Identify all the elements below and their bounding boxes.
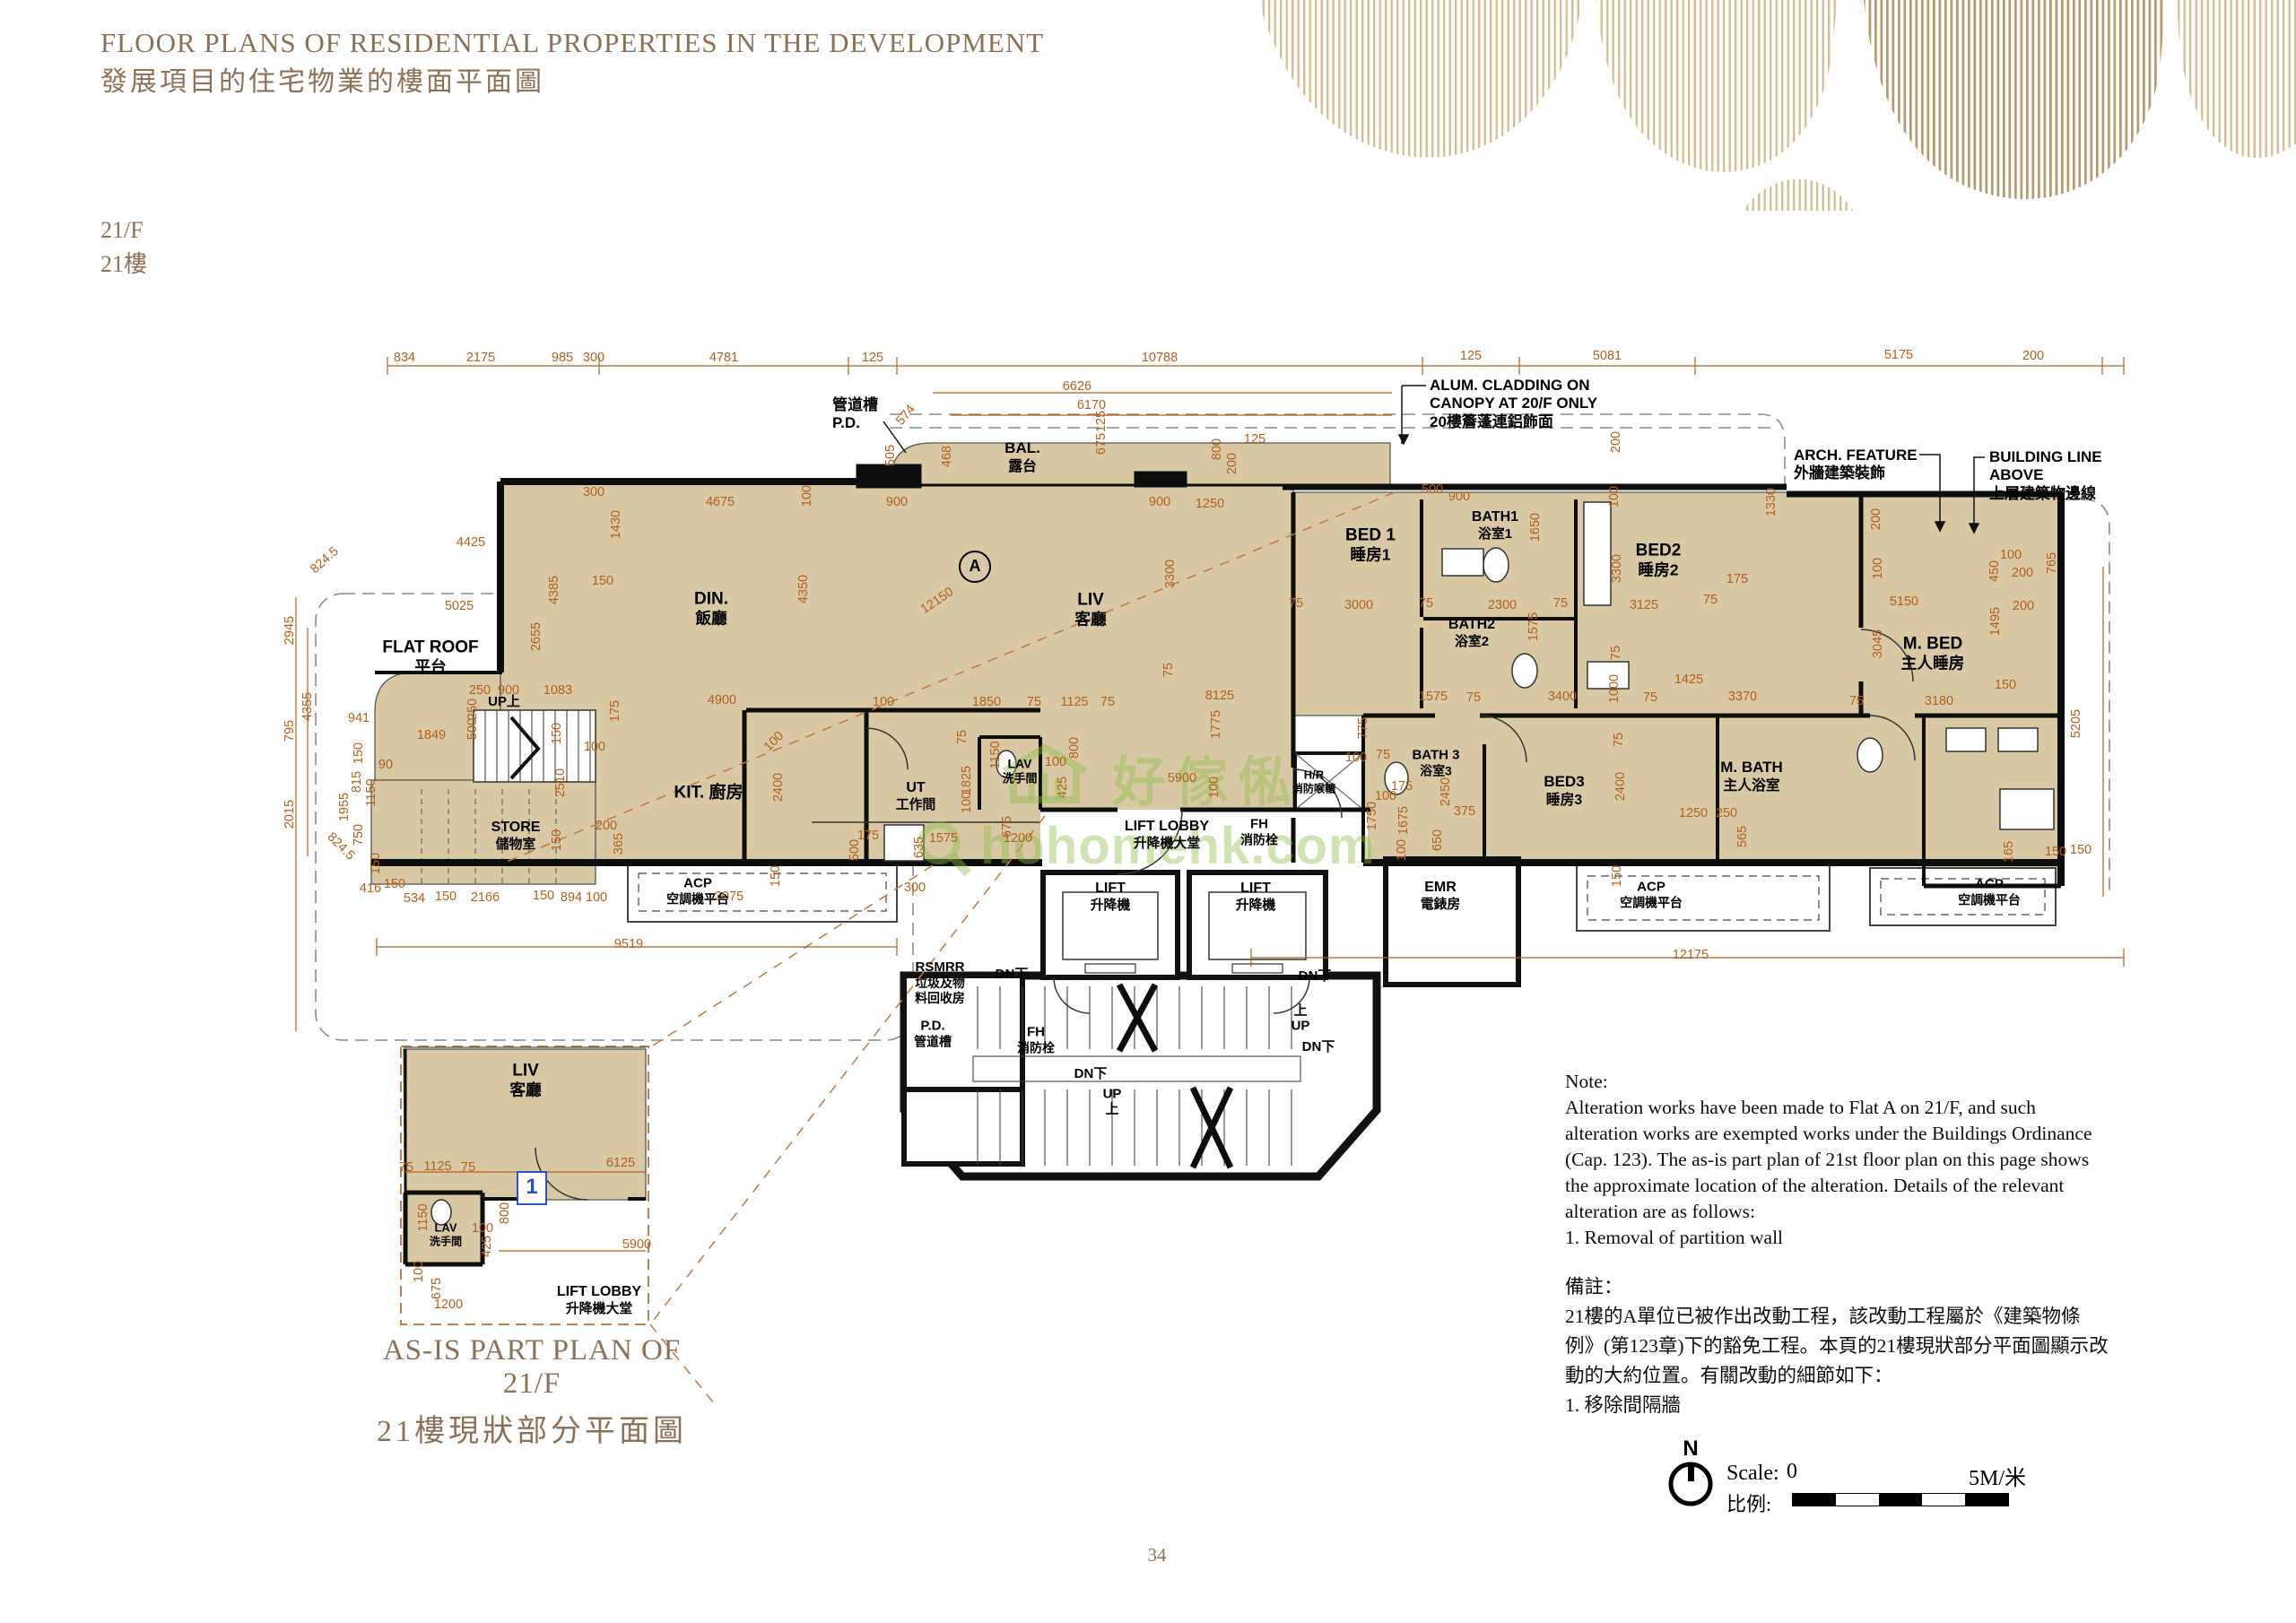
dimension-label: 1250 bbox=[1196, 497, 1224, 511]
dimension-label: 900 bbox=[1149, 495, 1170, 509]
dimension-label: 175 bbox=[1726, 572, 1748, 586]
dimension-label: 500 bbox=[848, 839, 862, 861]
scale-zero: 0 bbox=[1787, 1460, 1797, 1484]
note-en: Note: Alteration works have been made to… bbox=[1565, 1069, 2211, 1251]
dimension-label: 1495 bbox=[1988, 607, 2003, 636]
dimension-label: 100 bbox=[2000, 548, 2022, 562]
dimension-label: 534 bbox=[404, 891, 425, 906]
dimension-label: 150 bbox=[369, 853, 383, 874]
dimension-label: 3400 bbox=[1548, 690, 1577, 704]
dimension-label: 416 bbox=[360, 881, 381, 896]
dimension-label: 1750 bbox=[1365, 802, 1379, 830]
asis-dimension-label: 800 bbox=[498, 1202, 512, 1224]
dimension-label: 1775 bbox=[1209, 710, 1223, 739]
dimension-label: 3300 bbox=[1610, 554, 1624, 583]
alteration-marker-1: 1 bbox=[517, 1171, 547, 1205]
plan-callout: BUILDING LINEABOVE上層建築物邊線 bbox=[1989, 448, 2102, 503]
note-line: Alteration works have been made to Flat … bbox=[1565, 1095, 2211, 1121]
dimension-label: 75 bbox=[1376, 748, 1390, 762]
room-label: EMR電錶房 bbox=[1421, 879, 1461, 913]
dimension-label: 3045 bbox=[1871, 629, 1885, 658]
dimension-label: 650 bbox=[1431, 829, 1445, 851]
dimension-label: 1575 bbox=[1419, 690, 1448, 704]
dimension-label: 125 bbox=[862, 351, 883, 365]
dimension-label: 800 bbox=[1067, 737, 1082, 759]
dimension-label: 3300 bbox=[1163, 560, 1178, 588]
plan-callout: ALUM. CLADDING ONCANOPY AT 20/F ONLY20樓簷… bbox=[1430, 377, 1597, 431]
room-label: M. BED主人睡房 bbox=[1901, 634, 1965, 674]
asis-dimension-label: 1125 bbox=[423, 1159, 451, 1174]
dimension-label: 675 bbox=[1000, 816, 1014, 838]
decorative-line-pattern bbox=[1258, 0, 2296, 211]
stair-direction-label: UP上 bbox=[488, 695, 520, 710]
room-label: M. BATH主人浴室 bbox=[1720, 759, 1783, 794]
room-label: LIFT LOBBY升降機大堂 bbox=[557, 1283, 641, 1317]
dimension-label: 12175 bbox=[1673, 948, 1709, 962]
room-label: LIV客廳 bbox=[1074, 590, 1106, 630]
dimension-label: 100 bbox=[960, 792, 974, 813]
room-label: H/R消防喉轆 bbox=[1292, 768, 1335, 796]
dimension-label: 2166 bbox=[471, 890, 500, 905]
dimension-label: 125 bbox=[1094, 411, 1109, 432]
asis-dimension-label: 1150 bbox=[416, 1203, 430, 1231]
dimension-label: 3180 bbox=[1925, 694, 1953, 708]
dimension-label: 150 bbox=[352, 742, 366, 764]
dimension-label: 1083 bbox=[544, 683, 572, 698]
scale-label-en: Scale: bbox=[1726, 1462, 1779, 1486]
note-title-zh: 備註： bbox=[1565, 1272, 2211, 1302]
dimension-label: 750 bbox=[352, 824, 366, 846]
note-line: 21樓的A單位已被作出改動工程，該改動工程屬於《建築物條 bbox=[1565, 1302, 2211, 1332]
scale-bar bbox=[1792, 1493, 2009, 1506]
asis-dimension-label: 100 bbox=[412, 1261, 426, 1282]
dimension-label: 125 bbox=[1244, 432, 1265, 447]
dimension-label: 75 bbox=[1612, 733, 1626, 747]
dimension-label: 4675 bbox=[706, 495, 735, 509]
asis-dimension-label: 5900 bbox=[622, 1237, 651, 1252]
dimension-label: 941 bbox=[348, 711, 370, 725]
dimension-label: 468 bbox=[940, 446, 954, 467]
room-label: FLAT ROOF平台 bbox=[382, 638, 478, 678]
dimension-label: 150 bbox=[550, 723, 564, 744]
note-line: 動的大約位置。有關改動的細節如下： bbox=[1565, 1361, 2211, 1391]
dimension-label: 1575 bbox=[1526, 612, 1541, 641]
dimension-label: 1955 bbox=[337, 793, 352, 821]
dimension-label: 2400 bbox=[1613, 772, 1628, 801]
dimension-label: 775 bbox=[1356, 717, 1370, 739]
dimension-label: 100 bbox=[1607, 486, 1622, 508]
asis-dimension-label: 75 bbox=[461, 1160, 475, 1175]
dimension-label: 150 bbox=[384, 877, 405, 891]
dimension-label: 900 bbox=[886, 495, 908, 509]
asis-caption-zh: 21樓現狀部分平面圖 bbox=[357, 1406, 707, 1450]
note-line: 1. 移除間隔牆 bbox=[1565, 1391, 2211, 1420]
note-line: 例》(第123章)下的豁免工程。本頁的21樓現狀部分平面圖顯示改 bbox=[1565, 1332, 2211, 1361]
stair-direction-label: UP 上 bbox=[1103, 1088, 1122, 1117]
scale-max: 5M/米 bbox=[1969, 1460, 2026, 1491]
asis-dimension-label: 75 bbox=[399, 1160, 413, 1175]
dimension-label: 2400 bbox=[771, 773, 786, 802]
room-label: LAV洗手間 bbox=[430, 1221, 462, 1249]
dimension-label: 2015 bbox=[283, 800, 297, 829]
dimension-label: 5205 bbox=[2069, 709, 2083, 738]
room-label: FH消防栓 bbox=[1240, 816, 1278, 847]
dimension-label: 425 bbox=[1056, 777, 1070, 798]
dimension-label: 2655 bbox=[529, 622, 544, 651]
dimension-label: 894 bbox=[561, 890, 582, 905]
room-label: LIFT升降機 bbox=[1236, 880, 1276, 914]
dimension-label: 100 bbox=[1395, 839, 1409, 861]
dimension-label: 100 bbox=[586, 890, 607, 905]
dimension-label: 795 bbox=[283, 720, 297, 742]
dimension-label: 4350 bbox=[796, 575, 811, 603]
room-label: UT工作間 bbox=[896, 779, 936, 813]
dimension-label: 300 bbox=[583, 485, 604, 499]
room-label: FH消防栓 bbox=[1017, 1024, 1055, 1055]
room-label: ACP空調機平台 bbox=[1620, 879, 1683, 910]
room-label: LIFT LOBBY升降機大堂 bbox=[1125, 818, 1209, 852]
dimension-label: 200 bbox=[2022, 349, 2044, 363]
stair-direction-label: DN下 bbox=[1299, 969, 1332, 985]
dimension-label: 100 bbox=[1207, 777, 1222, 798]
dimension-label: 800 bbox=[1210, 438, 1224, 460]
dimension-label: 4425 bbox=[457, 535, 485, 550]
dimension-label: 375 bbox=[1454, 804, 1475, 819]
dimension-label: 4355 bbox=[300, 692, 315, 721]
dimension-label: 200 bbox=[2013, 599, 2034, 613]
asis-dimension-label: 6125 bbox=[606, 1156, 635, 1170]
dimension-label: 75 bbox=[1027, 695, 1041, 709]
dimension-label: 635 bbox=[912, 837, 926, 858]
room-label: DIN.飯廳 bbox=[694, 589, 728, 629]
dimension-label: 75 bbox=[1849, 694, 1864, 708]
dimension-label: 75 bbox=[955, 730, 970, 744]
asis-caption-en: AS-IS PART PLAN OF 21/F bbox=[357, 1334, 707, 1401]
dimension-label: 5150 bbox=[1890, 595, 1918, 609]
dimension-label: 5081 bbox=[1593, 349, 1622, 363]
dimension-label: 2945 bbox=[283, 616, 297, 645]
dimension-label: 150 bbox=[2070, 843, 2092, 857]
room-label: BED2睡房2 bbox=[1636, 541, 1682, 581]
dimension-label: 150 bbox=[550, 829, 564, 851]
dimension-label: 1330 bbox=[1764, 488, 1779, 516]
dimension-label: 250 bbox=[1716, 806, 1737, 820]
dimension-label: 1575 bbox=[929, 831, 958, 846]
dimension-label: 1849 bbox=[417, 728, 446, 742]
dimension-label: 175 bbox=[608, 700, 622, 722]
dimension-label: 1150 bbox=[988, 741, 1003, 768]
dimension-label: 1150 bbox=[364, 778, 378, 806]
stair-direction-label: DN下 bbox=[1302, 1040, 1335, 1055]
north-arrow-icon: N bbox=[1662, 1437, 1719, 1524]
dimension-label: 765 bbox=[2045, 552, 2059, 574]
room-label: LAV洗手間 bbox=[1002, 757, 1037, 786]
dimension-label: 5175 bbox=[1884, 348, 1913, 362]
dimension-label: 505 bbox=[883, 445, 898, 466]
room-label: LIV客廳 bbox=[509, 1061, 541, 1101]
dimension-label: 90 bbox=[378, 758, 393, 772]
flat-a-marker: A bbox=[959, 551, 991, 583]
room-label: BED 1睡房1 bbox=[1345, 525, 1396, 566]
room-label: KIT. 廚房 bbox=[674, 782, 743, 803]
dimension-label: 5900 bbox=[1168, 771, 1196, 785]
dimension-label: 565 bbox=[1735, 826, 1750, 847]
room-label: BED3睡房3 bbox=[1544, 773, 1584, 809]
dimension-label: 1650 bbox=[1528, 513, 1543, 542]
brochure-page: 好傢俬 hohomehk.com FLOOR PLANS OF RESIDENT… bbox=[0, 0, 2296, 1623]
dimension-label: 150 bbox=[435, 890, 457, 904]
dimension-label: 250 bbox=[465, 699, 480, 720]
dimension-label: 100 bbox=[800, 485, 814, 507]
dimension-label: 675 bbox=[1094, 433, 1109, 455]
stair-direction-label: DN下 bbox=[996, 968, 1029, 983]
asis-dimension-label: 100 bbox=[472, 1221, 493, 1236]
dimension-label: 200 bbox=[1225, 453, 1239, 474]
note-line: alteration works are exempted works unde… bbox=[1565, 1121, 2211, 1147]
dimension-label: 75 bbox=[1703, 593, 1718, 607]
dimension-label: 1675 bbox=[1396, 806, 1411, 835]
dimension-label: 100 bbox=[1345, 751, 1367, 765]
dimension-label: 4900 bbox=[708, 693, 736, 707]
dimension-label: 1125 bbox=[1060, 695, 1088, 709]
dimension-label: 500 bbox=[465, 718, 480, 740]
note-line: the approximate location of the alterati… bbox=[1565, 1173, 2211, 1199]
dimension-label: 75 bbox=[1553, 596, 1568, 611]
dimension-label: 100 bbox=[584, 740, 605, 754]
dimension-label: 75 bbox=[1609, 646, 1623, 660]
asis-dimension-label: 1200 bbox=[434, 1298, 463, 1312]
room-label: LIFT升降機 bbox=[1091, 880, 1131, 914]
dimension-label: 1250 bbox=[1679, 806, 1708, 820]
dimension-label: 75 bbox=[1466, 690, 1481, 705]
dimension-label: 1850 bbox=[972, 695, 1001, 709]
note-line: alteration are as follows: bbox=[1565, 1199, 2211, 1225]
svg-text:N: N bbox=[1683, 1437, 1698, 1461]
dimension-label: 3000 bbox=[1344, 598, 1373, 612]
dimension-label: 150 bbox=[533, 889, 554, 903]
dimension-label: 3370 bbox=[1728, 690, 1757, 704]
room-label: STORE儲物室 bbox=[491, 819, 541, 853]
dimension-label: 300 bbox=[904, 881, 926, 895]
dimension-label: 200 bbox=[596, 819, 617, 833]
room-label: P.D.管道槽 bbox=[914, 1018, 952, 1049]
dimension-label: 100 bbox=[1871, 558, 1885, 579]
asis-caption: AS-IS PART PLAN OF 21/F 21樓現狀部分平面圖 bbox=[357, 1334, 707, 1450]
dimension-label: 2175 bbox=[466, 351, 495, 365]
stair-direction-label: 上 UP bbox=[1291, 1004, 1310, 1034]
dimension-label: 1425 bbox=[1674, 673, 1703, 687]
dimension-label: 3125 bbox=[1630, 598, 1658, 612]
note-zh: 備註： 21樓的A單位已被作出改動工程，該改動工程屬於《建築物條例》(第123章… bbox=[1565, 1272, 2211, 1420]
dimension-label: 4385 bbox=[547, 576, 561, 604]
room-label: BATH2浴室2 bbox=[1448, 616, 1495, 650]
dimension-label: 1000 bbox=[1607, 674, 1622, 703]
dimension-label: 150 bbox=[769, 865, 783, 887]
dimension-label: 450 bbox=[1987, 560, 2002, 582]
dimension-label: 834 bbox=[394, 351, 415, 365]
dimension-label: 500 bbox=[1422, 482, 1443, 497]
dimension-label: 900 bbox=[1448, 490, 1470, 504]
dimension-label: 75 bbox=[1643, 690, 1657, 705]
dimension-label: 75 bbox=[1161, 663, 1176, 677]
dimension-label: 10788 bbox=[1142, 351, 1178, 365]
asis-dimension-label: 675 bbox=[430, 1278, 444, 1299]
note-line: 1. Removal of partition wall bbox=[1565, 1225, 2211, 1251]
dimension-label: 4781 bbox=[709, 351, 738, 365]
page-number: 34 bbox=[1130, 1544, 1184, 1567]
dimension-label: 5025 bbox=[445, 599, 474, 613]
dimension-label: 9519 bbox=[614, 937, 643, 951]
dimension-label: 2450 bbox=[1439, 777, 1453, 806]
dimension-label: 815 bbox=[350, 771, 364, 793]
dimension-label: 6626 bbox=[1063, 379, 1091, 394]
note-title-en: Note: bbox=[1565, 1069, 2211, 1095]
dimension-label: 75 bbox=[1419, 596, 1433, 611]
plan-callout: 管道槽P.D. bbox=[832, 396, 878, 433]
room-label: ACP空調機平台 bbox=[1958, 876, 2021, 907]
dimension-label: 985 bbox=[552, 351, 573, 365]
stair-direction-label: DN下 bbox=[1074, 1067, 1108, 1082]
room-label: BATH 3浴室3 bbox=[1412, 747, 1459, 778]
scale-label-zh: 比例: bbox=[1726, 1488, 1771, 1517]
dimension-label: 1825 bbox=[960, 766, 974, 794]
dimension-label: 150 bbox=[592, 574, 613, 588]
dimension-label: 200 bbox=[1609, 431, 1623, 453]
dimension-label: 2300 bbox=[1488, 598, 1517, 612]
dimension-label: 2510 bbox=[553, 768, 568, 797]
dimension-label: 8125 bbox=[1205, 689, 1234, 703]
room-label: BATH1浴室1 bbox=[1472, 508, 1518, 542]
dimension-label: 165 bbox=[2002, 841, 2016, 863]
dimension-label: 100 bbox=[1045, 755, 1066, 769]
dimension-label: 150 bbox=[2045, 845, 2066, 859]
dimension-label: 365 bbox=[612, 833, 626, 855]
note-line: (Cap. 123). The as-is part plan of 21st … bbox=[1565, 1147, 2211, 1173]
room-label: ACP空調機平台 bbox=[666, 875, 729, 907]
note-block: Note: Alteration works have been made to… bbox=[1565, 1069, 2211, 1420]
asis-dimension-label: 425 bbox=[480, 1236, 494, 1257]
dimension-label: 1430 bbox=[609, 510, 623, 539]
dimension-label: 125 bbox=[1460, 349, 1482, 363]
dimension-label: 75 bbox=[1289, 596, 1303, 611]
room-label: BAL.露台 bbox=[1004, 439, 1040, 475]
dimension-label: 200 bbox=[2012, 566, 2033, 580]
dimension-label: 200 bbox=[1869, 508, 1883, 530]
room-label: RSMRR垃圾及物料回收房 bbox=[915, 959, 965, 1006]
dimension-label: 300 bbox=[583, 351, 604, 365]
dimension-label: 75 bbox=[1100, 695, 1115, 709]
plan-callout: ARCH. FEATURE外牆建築裝飾 bbox=[1794, 447, 1918, 483]
dimension-label: 150 bbox=[1995, 678, 2016, 692]
dimension-label: 100 bbox=[873, 695, 894, 709]
